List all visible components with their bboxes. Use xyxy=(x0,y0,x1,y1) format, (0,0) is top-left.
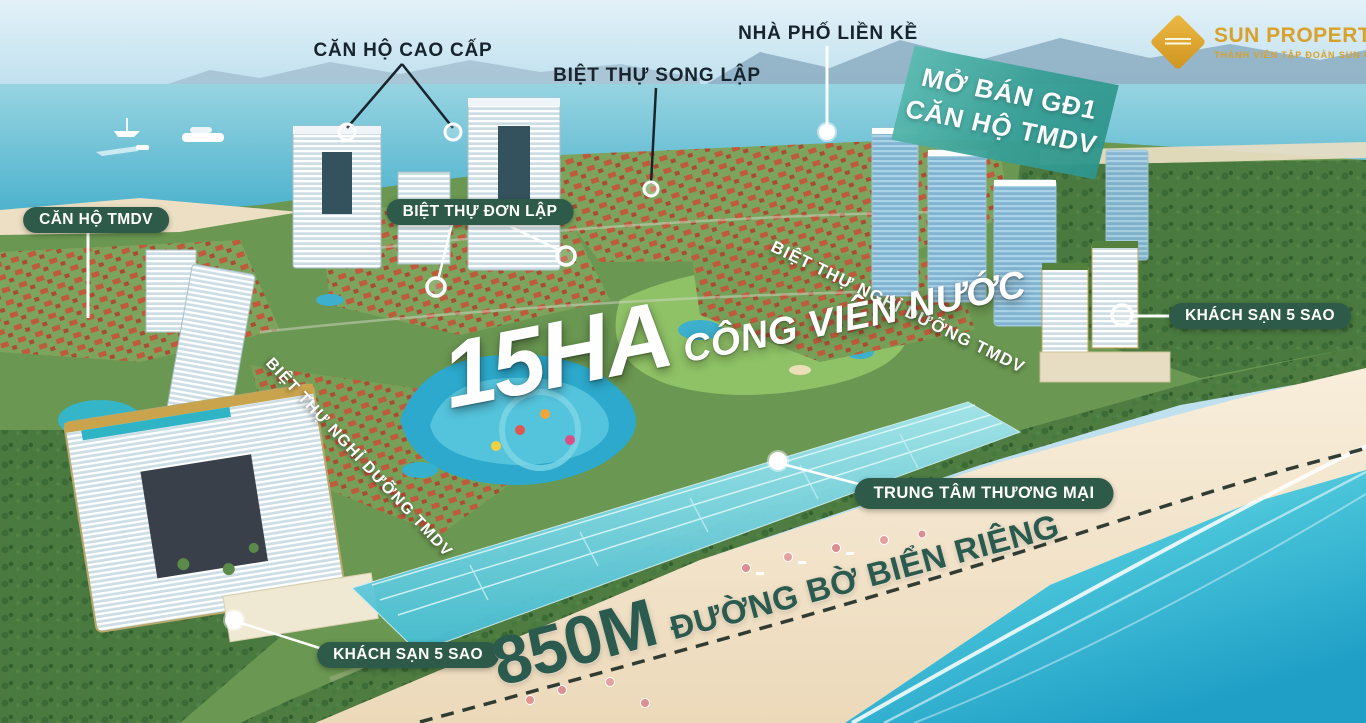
label-premium-apartments: CĂN HỘ CAO CẤP xyxy=(313,40,492,62)
masterplan-aerial-view: CĂN HỘ CAO CẤP BIỆT THỰ SONG LẬP NHÀ PHỐ… xyxy=(0,0,1366,723)
water-park-headline: 15HA CÔNG VIÊN NƯỚC xyxy=(436,223,1030,418)
pill-five-star-hotel-bottom: KHÁCH SẠN 5 SAO xyxy=(317,642,499,668)
sun-property-logo: SUN PROPERTY® THÀNH VIÊN TẬP ĐOÀN SUN GR… xyxy=(1152,16,1366,68)
sun-property-logo-icon xyxy=(1152,16,1204,68)
private-beach-size: 850M xyxy=(486,592,662,694)
private-beach-headline: 850M ĐƯỜNG BỜ BIỂN RIÊNG xyxy=(486,485,1063,695)
phase1-announcement: MỞ BÁN GĐ1 CĂN HỘ TMDV xyxy=(891,46,1119,180)
label-resort-villas-west: BIỆT THỰ NGHỈ DƯỠNG TMDV xyxy=(261,355,455,561)
brand-name: SUN PROPERTY® xyxy=(1214,24,1366,48)
pill-tmdv-apartments: CĂN HỘ TMDV xyxy=(23,207,169,233)
brand-tagline: THÀNH VIÊN TẬP ĐOÀN SUN GROUP xyxy=(1214,50,1366,60)
label-row-townhouses: NHÀ PHỐ LIỀN KỀ xyxy=(738,23,918,45)
private-beach-label: ĐƯỜNG BỜ BIỂN RIÊNG xyxy=(666,507,1063,648)
water-park-size: 15HA xyxy=(436,292,676,419)
pill-detached-villas: BIỆT THỰ ĐƠN LẬP xyxy=(387,199,574,225)
label-semi-detached-villas: BIỆT THỰ SONG LẬP xyxy=(553,65,761,87)
pill-five-star-hotel-right: KHÁCH SẠN 5 SAO xyxy=(1169,303,1351,329)
